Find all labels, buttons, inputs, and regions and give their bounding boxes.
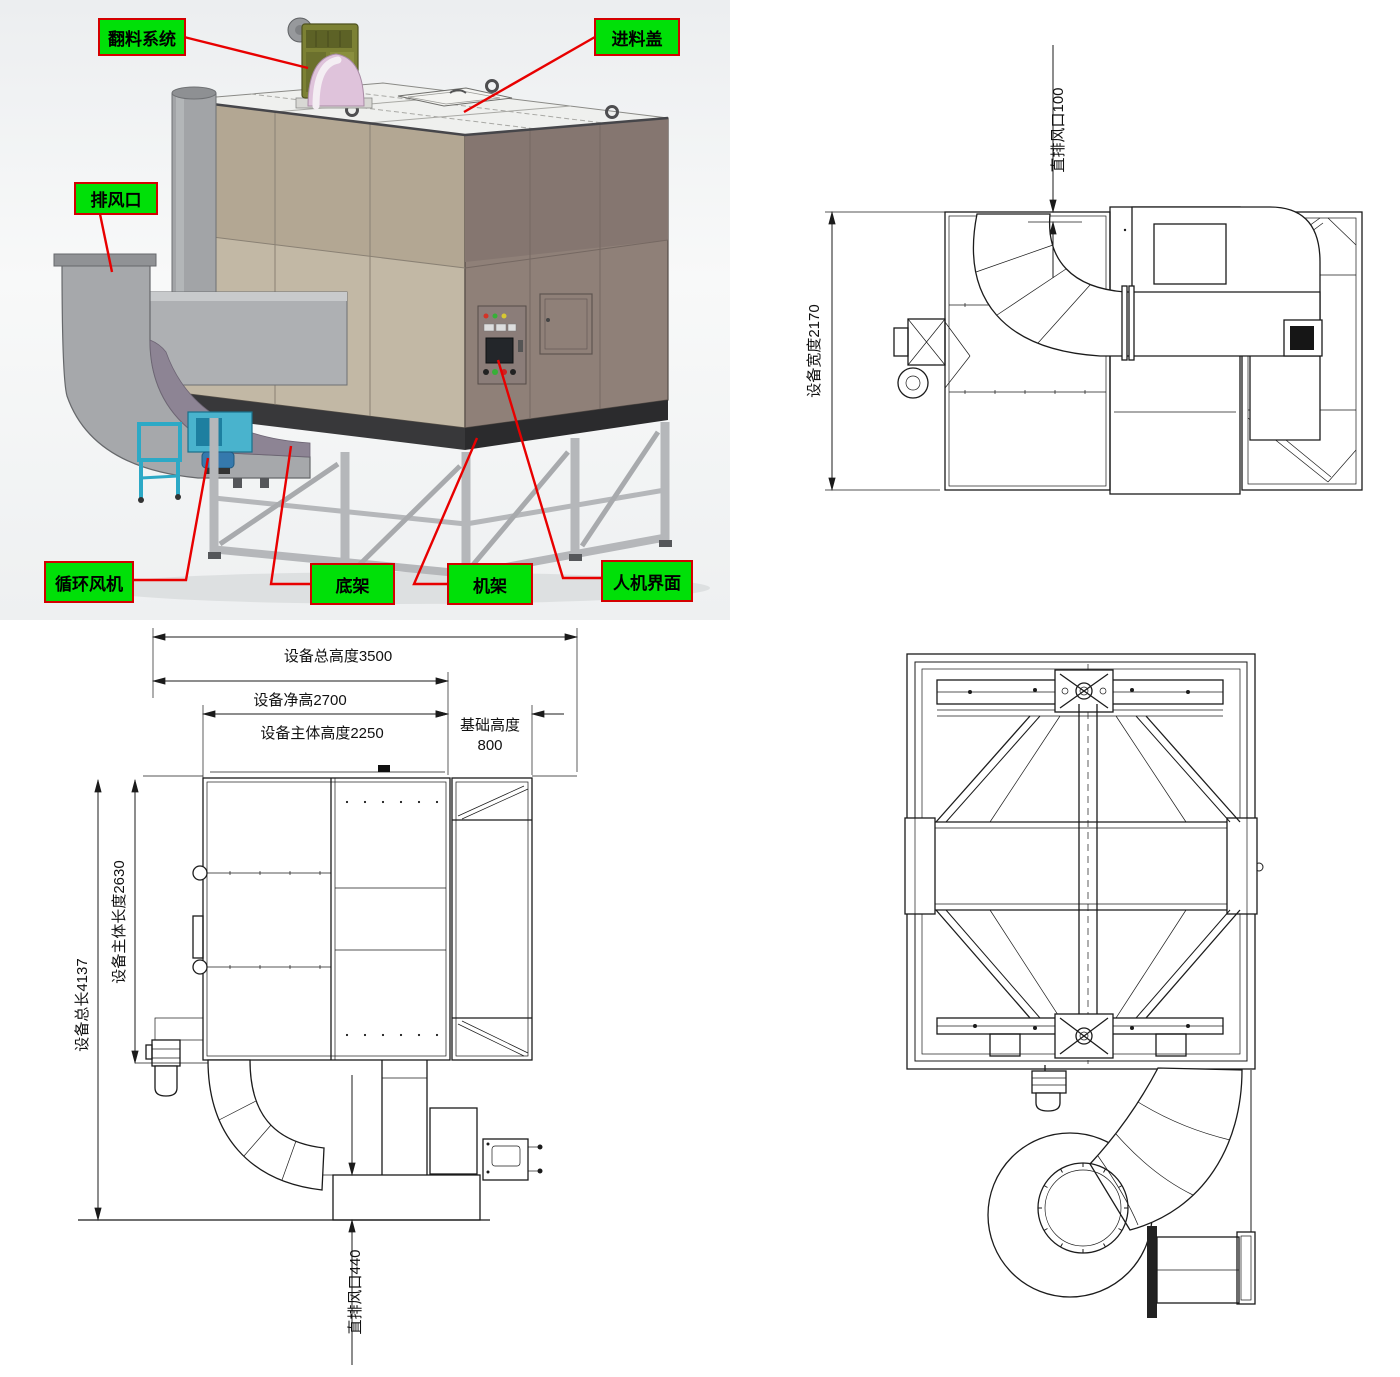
label-feed-cover: 进料盖 (594, 18, 680, 56)
dim-body-height: 设备主体高度2250 (203, 714, 448, 742)
dim-body-length-text: 设备主体长度2630 (111, 860, 128, 983)
dim-foundation: 基础高度 800 (416, 714, 564, 754)
extension-lines (135, 628, 577, 1175)
drive-motor (894, 319, 970, 398)
dim-foundation-value-text: 800 (477, 737, 502, 754)
internal-view-svg (870, 630, 1350, 1377)
dim-total-length: 设备总长4137 (74, 780, 98, 1220)
dim-outlet-100-text: 直排风口100 (1050, 87, 1067, 172)
fan-volute (988, 1068, 1251, 1297)
side-view-body (193, 765, 450, 1060)
dim-net-height-text: 设备净高2700 (253, 692, 346, 709)
label-bottom-frame-text: 底架 (336, 572, 370, 597)
dim-body-height-text: 设备主体高度2250 (260, 725, 383, 742)
dim-total-length-text: 设备总长4137 (74, 958, 91, 1051)
bottom-bearing-bar (937, 1014, 1223, 1058)
internal-view-drawing (870, 630, 1350, 1377)
dim-net-height: 设备净高2700 (153, 681, 448, 709)
iso-3d-view: 翻料系统 进料盖 排风口 循环风机 底架 机架 人机界面 (0, 0, 730, 620)
dim-total-height: 设备总高度3500 (153, 637, 577, 665)
dim-width-text: 设备宽度2170 (806, 304, 823, 397)
drum-motor (1032, 1065, 1066, 1111)
label-exhaust-outlet-text: 排风口 (91, 186, 142, 211)
label-flip-system-text: 翻料系统 (108, 25, 176, 50)
machine-box (180, 83, 668, 450)
label-machine-frame-text: 机架 (473, 572, 507, 597)
side-view-svg: 设备总高度3500 设备净高2700 设备主体高度2250 基础高度 800 设… (60, 620, 600, 1377)
top-bearing-bar (937, 670, 1223, 716)
hmi-screen (486, 338, 513, 363)
top-view-svg: 设备宽度2170 直排风口100 (780, 20, 1400, 540)
label-machine-frame: 机架 (447, 563, 533, 605)
label-circulation-fan: 循环风机 (44, 561, 134, 603)
drawing-sheet: 翻料系统 进料盖 排风口 循环风机 底架 机架 人机界面 (0, 0, 1400, 1377)
dim-total-height-text: 设备总高度3500 (284, 648, 392, 665)
lower-ducts (208, 1060, 543, 1220)
label-circulation-fan-text: 循环风机 (55, 570, 123, 595)
iso-3d-render (0, 0, 730, 620)
label-exhaust-outlet: 排风口 (74, 182, 158, 215)
top-view-drawing: 设备宽度2170 直排风口100 (780, 20, 1400, 540)
dim-width: 设备宽度2170 (806, 212, 948, 490)
turning-motor (146, 1018, 203, 1096)
label-hmi: 人机界面 (601, 560, 693, 602)
outlet-box (1147, 1226, 1255, 1318)
dim-body-length: 设备主体长度2630 (111, 780, 135, 1063)
dim-foundation-label-text: 基础高度 (460, 717, 520, 734)
dim-outlet-440-text: 直排风口440 (347, 1249, 364, 1334)
mid-rails (905, 818, 1257, 914)
label-flip-system: 翻料系统 (98, 18, 186, 56)
side-view-drawing: 设备总高度3500 设备净高2700 设备主体高度2250 基础高度 800 设… (60, 620, 600, 1377)
label-bottom-frame: 底架 (310, 563, 395, 605)
label-hmi-text: 人机界面 (613, 569, 681, 594)
label-feed-cover-text: 进料盖 (612, 25, 663, 50)
foundation-frame (452, 778, 532, 1060)
